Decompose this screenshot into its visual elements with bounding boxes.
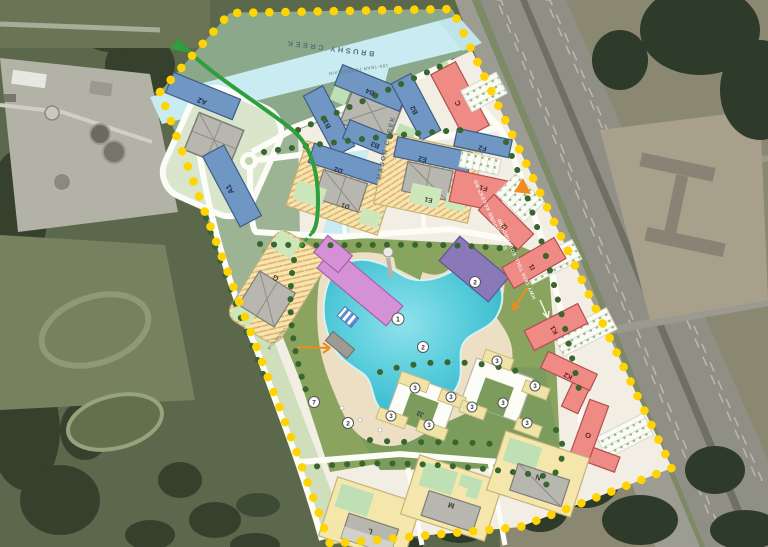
- marker-beach: 2: [470, 277, 481, 288]
- marker-2-label: 2: [473, 280, 477, 287]
- site-plan-map: BRUSHY CREEK MASON CREEK 100-YEAR FLOODP…: [0, 0, 768, 547]
- marker-1-label: 1: [396, 317, 400, 324]
- marker-lagoon: 1: [392, 313, 404, 325]
- marker-7-label: 7: [312, 400, 316, 407]
- marker-2-label: 2: [346, 421, 350, 428]
- marker-beach: 2: [418, 342, 429, 353]
- marker-beach: 2: [343, 418, 354, 429]
- marker-2-label: 2: [421, 345, 425, 352]
- pavilion: [383, 247, 393, 257]
- treatment-plant: [0, 58, 178, 232]
- small-pond: [236, 493, 280, 517]
- marker-boardwalk: 7: [309, 397, 320, 408]
